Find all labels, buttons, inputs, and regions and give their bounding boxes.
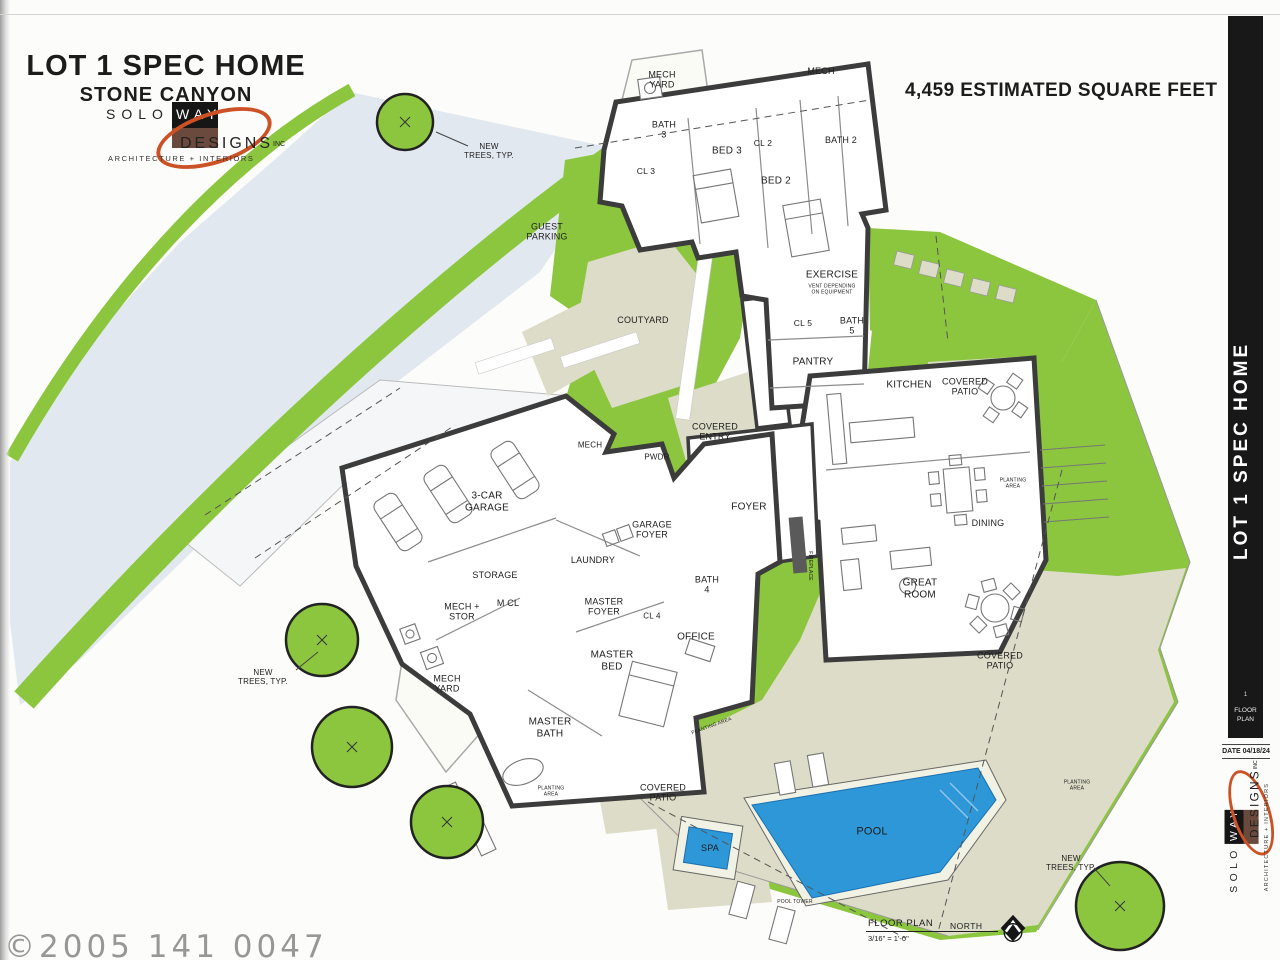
page-title: LOT 1 SPEC HOME bbox=[10, 50, 322, 83]
logo-solo-text: SOLO bbox=[1227, 846, 1239, 893]
logo-tagline: ARCHITECTURE + INTERIORS bbox=[1263, 783, 1270, 891]
date-label: DATE 04/18/24 bbox=[1222, 744, 1270, 759]
sheet-number: 1 bbox=[1228, 692, 1263, 698]
sheet-label: FLOOR PLAN bbox=[1228, 707, 1263, 724]
scan-edge-top bbox=[0, 14, 1280, 15]
plan-scale: 3/16" = 1'-0" bbox=[868, 934, 909, 943]
sheet-sidebar: LOT 1 SPEC HOME 1 FLOOR PLAN bbox=[1228, 16, 1263, 738]
logo-designs-text: DESIGNSINC bbox=[1249, 760, 1262, 838]
square-feet-note: 4,459 ESTIMATED SQUARE FEET bbox=[905, 80, 1217, 102]
plan-title-rule bbox=[866, 931, 998, 932]
soloway-logo: SOLO WAY DESIGNSINC ARCHITECTURE + INTER… bbox=[80, 104, 270, 164]
logo-designs-text: DESIGNSINC bbox=[180, 135, 285, 153]
copyright-watermark: ©2005 141 0047 bbox=[4, 929, 328, 960]
logo-tagline: ARCHITECTURE + INTERIORS bbox=[108, 154, 255, 163]
north-arrow-icon bbox=[998, 914, 1028, 944]
plan-sheet-title: FLOOR PLAN bbox=[868, 918, 933, 929]
scan-edge-left bbox=[0, 0, 10, 960]
floor-plan-page: MECH YARDMECHBATH 3CL 3BED 3CL 2BED 2BAT… bbox=[0, 0, 1280, 960]
soloway-logo-sidebar: SOLO WAY DESIGNSINC ARCHITECTURE + INTER… bbox=[1226, 771, 1270, 912]
logo-solo-text: SOLO bbox=[106, 106, 169, 122]
spa bbox=[673, 816, 743, 879]
sidebar-vertical-title: LOT 1 SPEC HOME bbox=[1231, 286, 1260, 616]
north-label: NORTH bbox=[950, 921, 983, 931]
title-block: LOT 1 SPEC HOME STONE CANYON bbox=[10, 50, 322, 107]
